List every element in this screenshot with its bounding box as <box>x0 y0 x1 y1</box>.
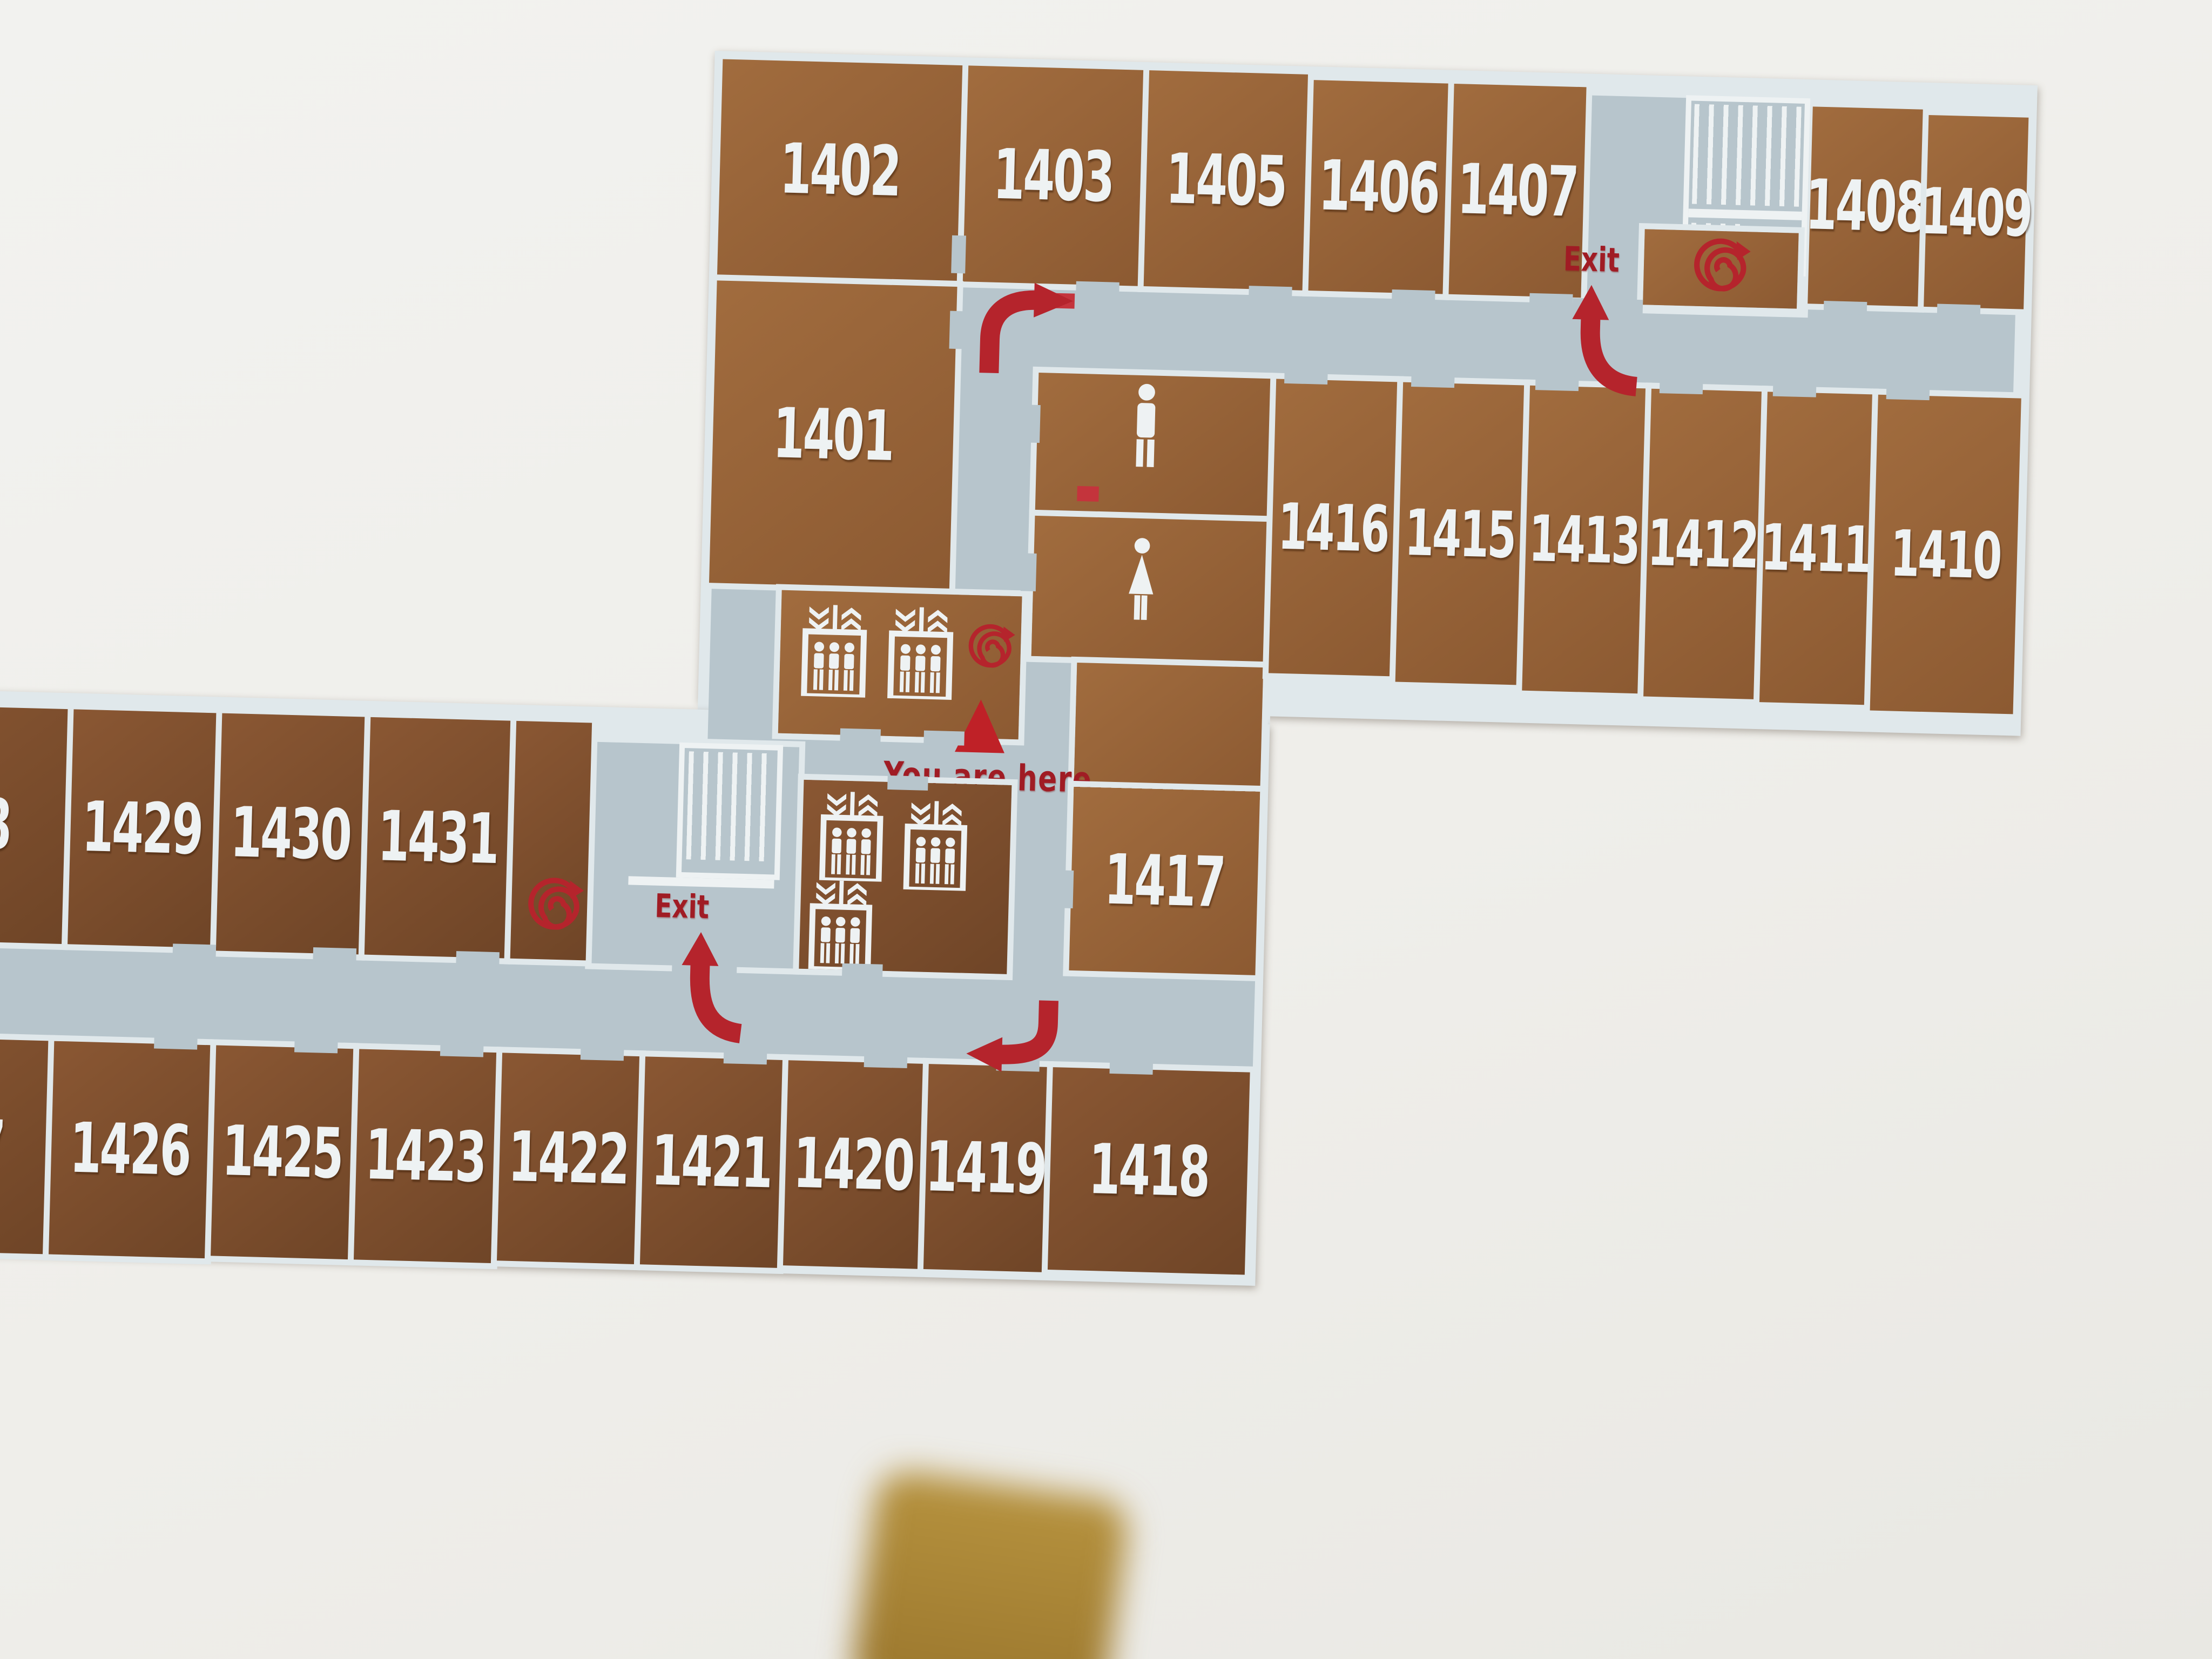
room-1409: 1409 <box>1924 115 2028 309</box>
room-1411: 1411 <box>1759 392 1873 705</box>
room-label: 1413 <box>1522 386 1646 693</box>
room-label: 1409 <box>1924 115 2028 309</box>
room-label: 1415 <box>1395 382 1525 685</box>
room-1408: 1408 <box>1808 106 1923 306</box>
room-partial-lower-left: 7 <box>0 1035 49 1254</box>
door-opening <box>581 1046 624 1061</box>
room-label: 1416 <box>1269 379 1398 677</box>
room-1421: 1421 <box>640 1056 783 1268</box>
room-label: 1430 <box>216 713 365 955</box>
room-label: 1412 <box>1643 389 1762 699</box>
room-1426: 1426 <box>49 1041 211 1258</box>
door-opening <box>1886 385 1930 400</box>
door-opening <box>1021 553 1037 591</box>
door-opening <box>1024 404 1041 443</box>
room-1401: 1401 <box>709 280 957 589</box>
stair-treads-icon <box>686 751 774 861</box>
door-opening <box>440 1042 484 1057</box>
room-label: 1411 <box>1759 392 1873 705</box>
room-label: 8 <box>0 703 68 944</box>
room-label: 7 <box>0 1035 49 1254</box>
room-label: 1423 <box>354 1049 497 1263</box>
door-opening <box>840 729 881 744</box>
stair-treads-icon <box>1692 104 1802 207</box>
room-label: 1422 <box>497 1053 640 1264</box>
elevator-icon <box>902 800 968 891</box>
room-1422: 1422 <box>497 1053 640 1264</box>
fire-hose-spiral-icon <box>523 875 584 936</box>
room-label: 1425 <box>211 1046 354 1260</box>
room-1419: 1419 <box>923 1064 1048 1272</box>
door-opening <box>842 963 883 979</box>
room-label: 1417 <box>1069 787 1260 975</box>
room-label: 1401 <box>709 280 957 589</box>
door-opening <box>1284 369 1328 385</box>
stair-enclosure-lower <box>682 748 778 874</box>
fire-equipment-marker <box>1077 486 1099 502</box>
door-opening <box>864 1053 908 1068</box>
door-opening <box>949 311 965 349</box>
elevator-icon <box>819 791 885 882</box>
route-arrow-exit-lower <box>671 910 750 1039</box>
room-1413: 1413 <box>1522 386 1646 693</box>
room-1405: 1405 <box>1144 70 1309 291</box>
fire-hose-spiral-icon <box>965 622 1015 673</box>
room-1417: 1417 <box>1069 787 1260 975</box>
door-opening <box>294 1038 338 1053</box>
door-opening <box>1937 304 1981 318</box>
route-arrow-exit-upper <box>1561 265 1645 394</box>
room-label: 1405 <box>1144 70 1309 291</box>
room-label: 1426 <box>49 1041 211 1258</box>
door-opening <box>1058 870 1074 908</box>
floor-plan-map: 1402 1403 1405 1406 1407 1408 1409 Exit … <box>0 1 2212 1659</box>
room-label: 1419 <box>923 1064 1048 1272</box>
male-restroom-icon <box>1131 383 1161 468</box>
fire-hose-spiral-icon <box>1689 235 1751 298</box>
female-restroom-icon <box>1124 537 1158 621</box>
room-1412: 1412 <box>1643 389 1762 699</box>
room-1420: 1420 <box>783 1060 923 1269</box>
room-label: 1421 <box>640 1056 783 1268</box>
door-opening <box>923 731 965 746</box>
room-1403: 1403 <box>963 65 1144 286</box>
door-opening <box>456 951 500 966</box>
route-arrow-turn-left <box>959 993 1064 1077</box>
room-1431: 1431 <box>365 717 511 959</box>
room-label: 1429 <box>68 709 217 948</box>
room-label: 1403 <box>963 65 1144 286</box>
room-1406: 1406 <box>1309 80 1449 294</box>
wall-photo-scene: 1402 1403 1405 1406 1407 1408 1409 Exit … <box>0 0 2212 1659</box>
room-1410: 1410 <box>1870 395 2021 714</box>
door-opening <box>1109 1060 1153 1075</box>
door-opening <box>1773 382 1817 397</box>
room-1415: 1415 <box>1395 382 1525 685</box>
room-label: 1418 <box>1048 1067 1250 1274</box>
room-1402: 1402 <box>717 59 963 281</box>
elevator-icon <box>801 604 868 698</box>
door-opening <box>154 1035 198 1050</box>
door-opening <box>724 1049 767 1064</box>
door-opening <box>1249 286 1292 300</box>
door-opening <box>172 943 216 959</box>
room-1423: 1423 <box>354 1049 497 1263</box>
room-label: 1431 <box>365 717 511 959</box>
room-1418: 1418 <box>1048 1067 1250 1274</box>
door-opening <box>1392 289 1435 304</box>
door-opening <box>887 775 928 791</box>
elevator-icon <box>887 606 954 700</box>
door-opening <box>313 947 356 962</box>
room-1430: 1430 <box>216 713 365 955</box>
door-opening <box>1660 379 1703 394</box>
room-label: 1410 <box>1870 395 2021 714</box>
room-1425: 1425 <box>211 1046 354 1260</box>
room-1429: 1429 <box>68 709 217 948</box>
elevator-icon <box>807 880 873 970</box>
stair-landing <box>1688 208 1802 220</box>
room-label: 1402 <box>717 59 963 281</box>
door-opening <box>1824 301 1867 315</box>
room-partial-upper-left: 8 <box>0 703 68 944</box>
door-opening <box>1411 373 1455 388</box>
room-1416: 1416 <box>1269 379 1398 677</box>
room-label: 1406 <box>1309 80 1449 294</box>
room-label: 1420 <box>783 1060 923 1269</box>
door-opening <box>951 235 966 274</box>
room-label: 1408 <box>1808 106 1923 306</box>
route-arrow-turn-right <box>968 278 1092 376</box>
